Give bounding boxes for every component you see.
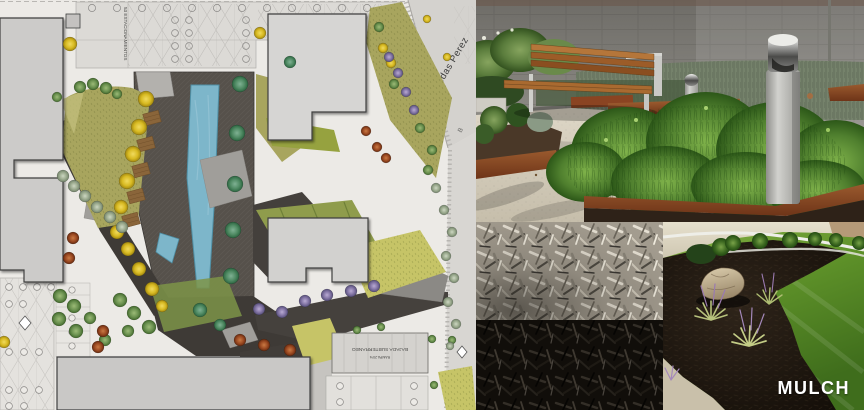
bollard-light-main [766, 34, 800, 204]
site-plan: 53 ESTACIONAMIENTOS Leonidas Perez B [0, 0, 476, 410]
parking-count-label: 53 ESTACIONAMIENTOS [123, 7, 128, 60]
mulch-sample-photo: MULCH [663, 222, 864, 410]
black-mulch-photo [476, 320, 663, 410]
mulch-caption: MULCH [778, 378, 851, 399]
ramp-label: RAMPA 20% [369, 355, 390, 359]
landscape-collage: 53 ESTACIONAMIENTOS Leonidas Perez B [0, 0, 864, 410]
gray-mulch-photo [476, 222, 663, 320]
building-west [0, 18, 63, 282]
building-south [57, 357, 310, 410]
basement-label: BAJADA SUBTERRANEO [352, 346, 409, 352]
site-plan-drawing: 53 ESTACIONAMIENTOS Leonidas Perez B [0, 0, 476, 410]
garden-photo [476, 0, 864, 222]
